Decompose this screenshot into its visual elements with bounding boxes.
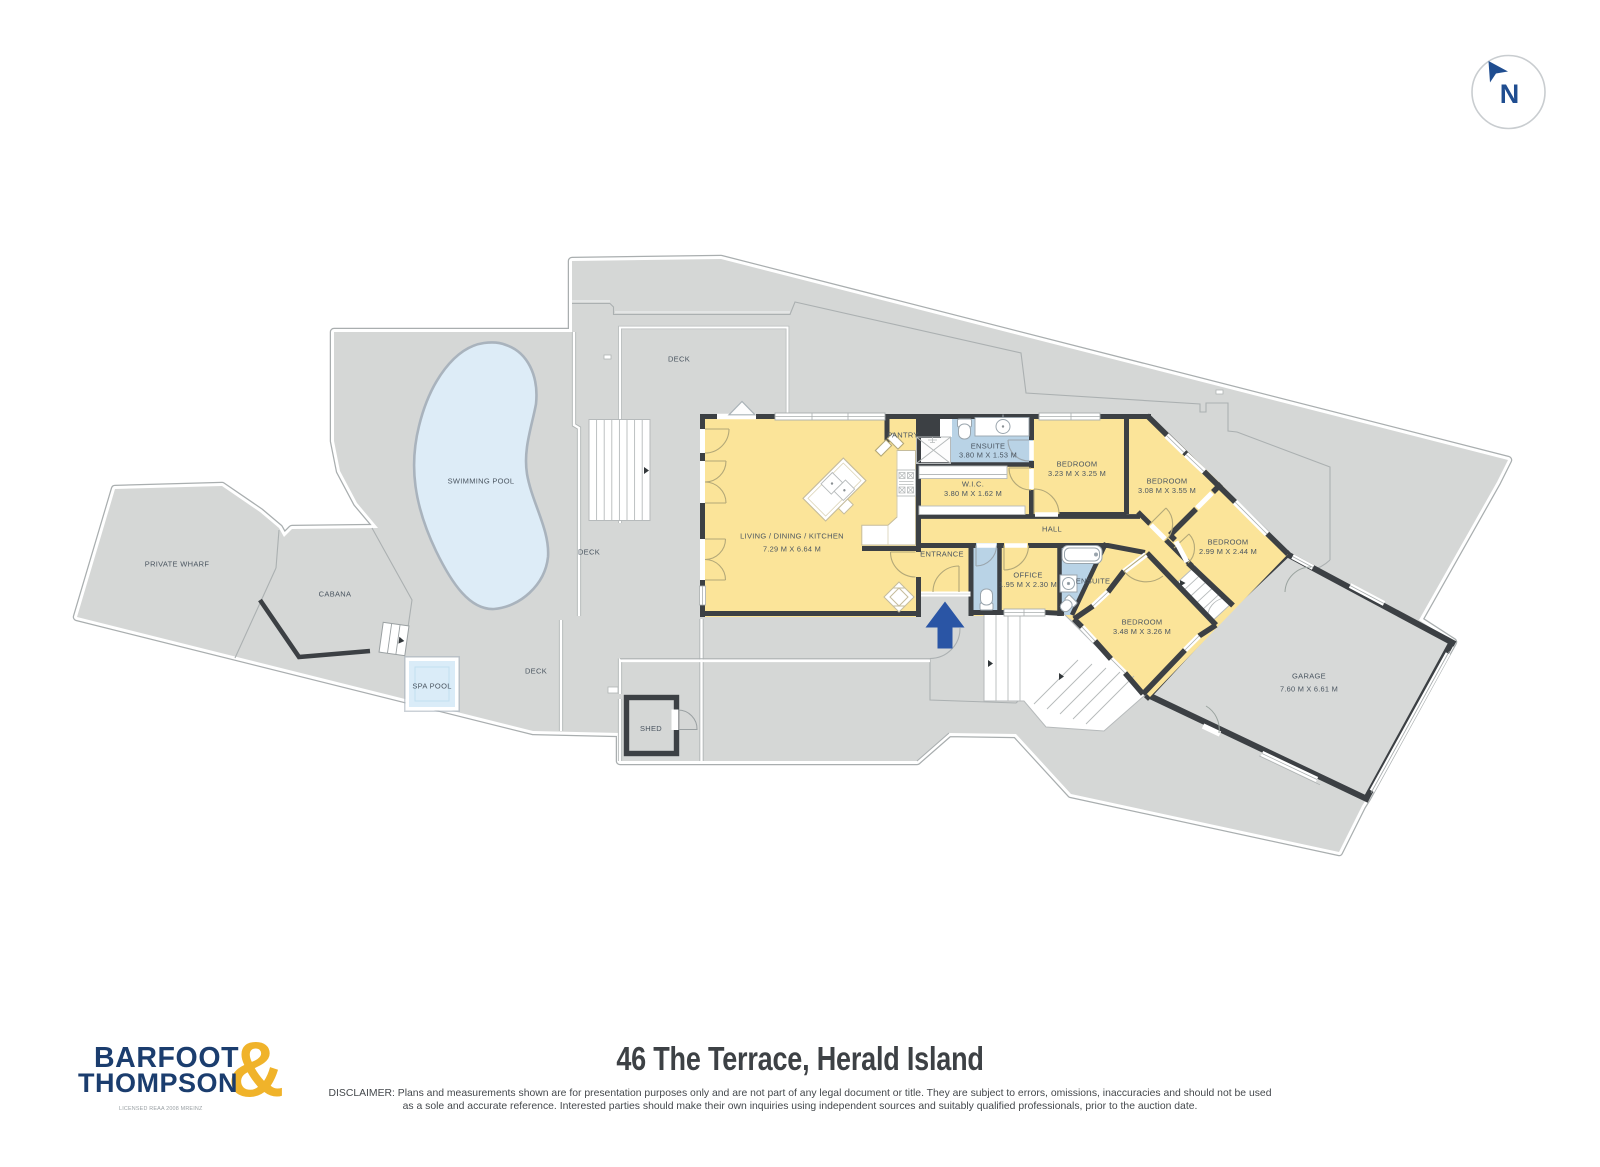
svg-text:CABANA: CABANA [319,590,352,599]
svg-text:W.I.C.: W.I.C. [962,480,984,489]
svg-text:DECK: DECK [525,667,547,676]
svg-text:ENSUITE: ENSUITE [971,442,1006,451]
svg-text:BEDROOM: BEDROOM [1208,538,1249,547]
svg-text:3.23 M X 3.25 M: 3.23 M X 3.25 M [1048,469,1106,478]
svg-text:PANTRY: PANTRY [887,431,919,440]
svg-text:BEDROOM: BEDROOM [1147,477,1188,486]
svg-text:SHED: SHED [640,724,662,733]
svg-text:GARAGE: GARAGE [1292,672,1326,681]
svg-text:ENTRANCE: ENTRANCE [920,550,964,559]
svg-text:2.99 M X 2.44 M: 2.99 M X 2.44 M [1199,547,1257,556]
svg-text:BEDROOM: BEDROOM [1057,460,1098,469]
svg-text:3.08 M X 3.55 M: 3.08 M X 3.55 M [1138,486,1196,495]
svg-text:N: N [1500,79,1520,109]
svg-text:HALL: HALL [1042,525,1062,534]
svg-text:3.80 M X 1.53 M: 3.80 M X 1.53 M [959,451,1017,460]
svg-text:3.48 M X 3.26 M: 3.48 M X 3.26 M [1113,627,1171,636]
svg-text:ENSUITE: ENSUITE [1076,577,1111,586]
svg-text:1.95 M X 2.30 M: 1.95 M X 2.30 M [999,580,1057,589]
svg-text:OFFICE: OFFICE [1013,571,1042,580]
svg-text:7.60 M X 6.61 M: 7.60 M X 6.61 M [1280,685,1338,694]
svg-text:LIVING / DINING / KITCHEN: LIVING / DINING / KITCHEN [740,532,844,541]
svg-text:DECK: DECK [578,548,600,557]
svg-text:PRIVATE WHARF: PRIVATE WHARF [145,560,210,569]
svg-text:DECK: DECK [668,355,690,364]
svg-text:7.29 M X 6.64 M: 7.29 M X 6.64 M [763,545,821,554]
svg-text:3.80 M X 1.62 M: 3.80 M X 1.62 M [944,489,1002,498]
svg-text:SPA POOL: SPA POOL [412,682,451,691]
svg-text:SWIMMING POOL: SWIMMING POOL [448,477,515,486]
svg-text:BEDROOM: BEDROOM [1122,618,1163,627]
